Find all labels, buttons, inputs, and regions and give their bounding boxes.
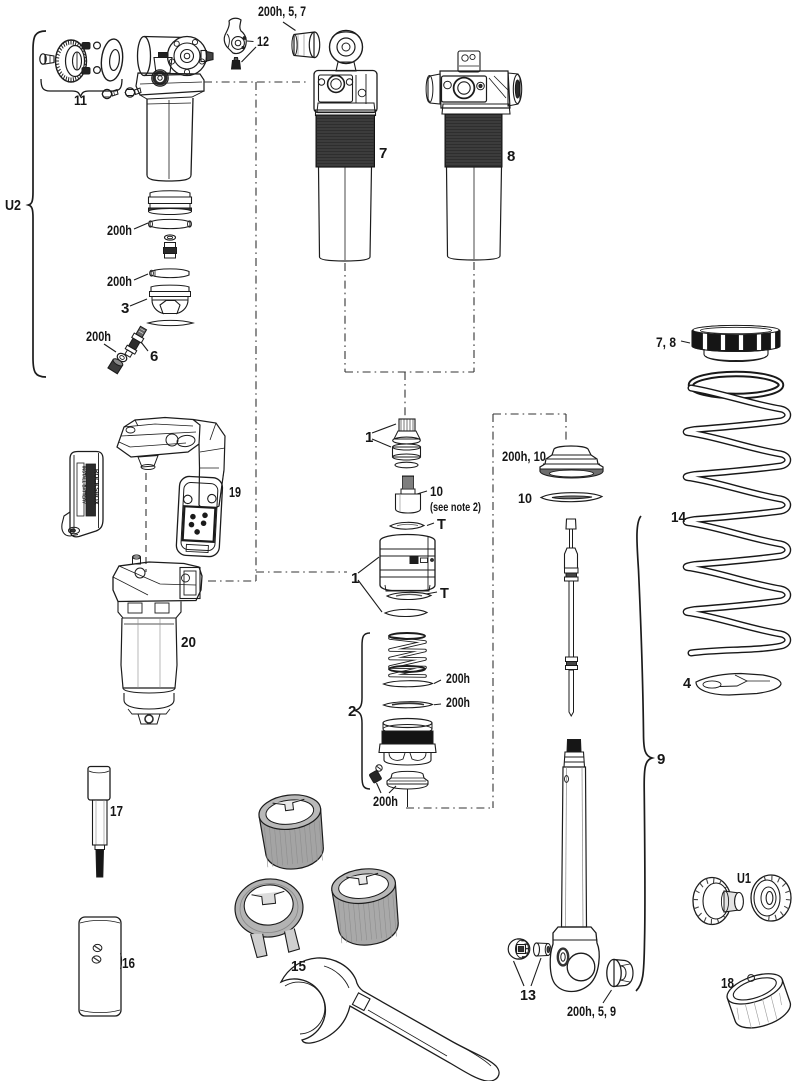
svg-text:10: 10 — [518, 490, 532, 506]
svg-text:1: 1 — [365, 429, 373, 446]
svg-text:17: 17 — [110, 804, 123, 820]
svg-text:11: 11 — [74, 92, 87, 108]
svg-text:200h: 200h — [86, 328, 111, 344]
svg-text:3: 3 — [121, 300, 129, 317]
svg-text:200h: 200h — [446, 694, 470, 710]
svg-text:200h: 200h — [446, 670, 470, 686]
svg-text:T: T — [440, 586, 449, 602]
svg-text:7, 8: 7, 8 — [656, 334, 676, 350]
svg-text:200h: 200h — [373, 793, 398, 809]
svg-text:7: 7 — [379, 145, 387, 162]
svg-text:200h: 200h — [107, 273, 132, 289]
svg-text:4: 4 — [683, 676, 691, 692]
svg-text:10: 10 — [430, 483, 443, 499]
svg-text:6: 6 — [150, 348, 158, 365]
svg-text:14: 14 — [671, 510, 686, 526]
svg-text:16: 16 — [122, 956, 135, 972]
svg-text:200h, 5, 7: 200h, 5, 7 — [258, 3, 306, 19]
svg-text:200h: 200h — [107, 222, 132, 238]
svg-text:19: 19 — [229, 485, 241, 501]
svg-text:2: 2 — [348, 703, 356, 720]
svg-text:ROCKSHOX: ROCKSHOX — [93, 469, 100, 506]
svg-text:9: 9 — [657, 751, 665, 768]
svg-text:T: T — [437, 517, 446, 533]
svg-text:13: 13 — [520, 988, 536, 1004]
svg-text:18: 18 — [721, 976, 734, 992]
svg-text:20: 20 — [181, 635, 196, 651]
svg-text:8: 8 — [507, 148, 515, 165]
svg-text:(see note 2): (see note 2) — [430, 502, 481, 514]
svg-text:200h, 10: 200h, 10 — [502, 448, 546, 464]
svg-text:12: 12 — [257, 33, 269, 49]
svg-text:200h, 5, 9: 200h, 5, 9 — [567, 1003, 616, 1019]
svg-text:U2: U2 — [5, 198, 21, 214]
svg-text:U1: U1 — [737, 871, 751, 887]
